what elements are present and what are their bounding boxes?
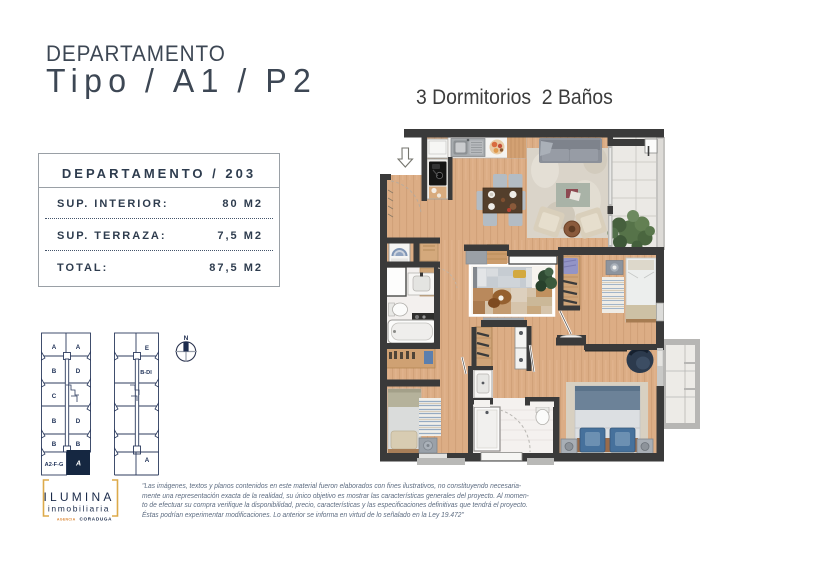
svg-text:inmobiliaria: inmobiliaria xyxy=(48,504,110,514)
svg-text:A: A xyxy=(52,344,57,351)
svg-text:B: B xyxy=(76,441,81,448)
svg-text:B: B xyxy=(52,441,57,448)
svg-text:B-DI: B-DI xyxy=(140,370,152,376)
svg-text:AGENCIA: AGENCIA xyxy=(57,517,76,521)
svg-text:A: A xyxy=(76,344,81,351)
svg-text:CORADUGA: CORADUGA xyxy=(80,516,113,521)
svg-text:A2-F-G: A2-F-G xyxy=(45,462,64,468)
svg-text:A: A xyxy=(75,461,81,468)
svg-text:A: A xyxy=(145,457,150,464)
svg-text:E: E xyxy=(145,345,149,352)
svg-text:D: D xyxy=(76,368,81,375)
svg-text:ILUMINA: ILUMINA xyxy=(43,490,114,504)
svg-text:D: D xyxy=(76,418,81,425)
svg-text:B: B xyxy=(52,418,57,425)
svg-text:N: N xyxy=(184,335,189,342)
svg-text:C: C xyxy=(52,393,57,400)
svg-text:B: B xyxy=(52,368,57,375)
